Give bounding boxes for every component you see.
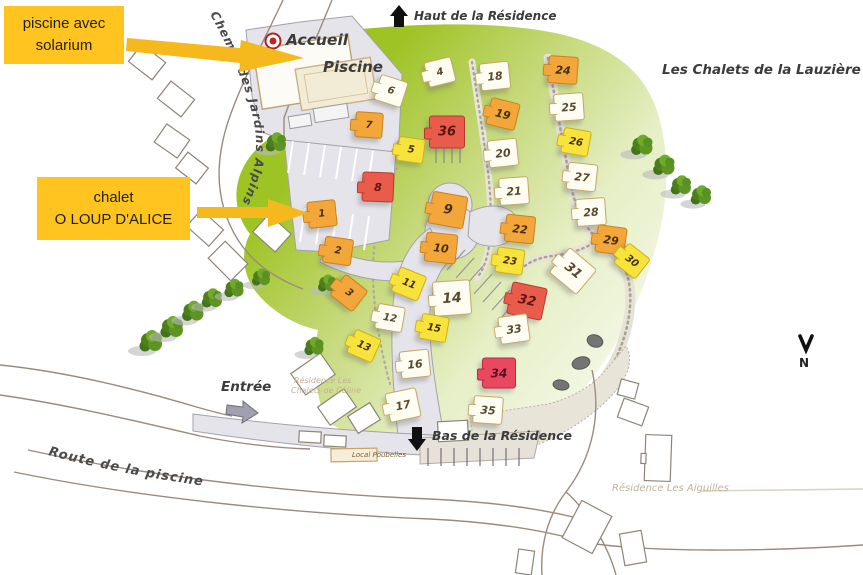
chalet-5: 5 xyxy=(396,136,426,165)
chalet-number: 22 xyxy=(512,222,529,237)
chalet-number: 10 xyxy=(433,241,450,256)
chalet-31: 31 xyxy=(549,247,598,295)
chalet-number: 1 xyxy=(318,208,326,220)
chalet-17: 17 xyxy=(384,387,422,423)
chalet-19: 19 xyxy=(485,97,521,131)
map-title: Les Chalets de la Lauzière xyxy=(662,62,861,78)
chalet-number: 29 xyxy=(603,232,620,247)
chalet-7: 7 xyxy=(354,111,384,139)
chalet-number: 31 xyxy=(561,259,585,282)
chalet-12: 12 xyxy=(374,303,406,333)
chalet-24: 24 xyxy=(547,55,579,85)
callout-pool: piscine avec solarium xyxy=(4,6,124,64)
callout-pool-line2: solarium xyxy=(4,35,124,57)
chalet-number: 24 xyxy=(555,63,571,77)
residence-map: Chemin des Jardins Alpins Route de la pi… xyxy=(0,0,863,575)
callout-chalet: chalet O LOUP D'ALICE xyxy=(37,177,190,240)
chalet-number: 4 xyxy=(435,66,444,78)
chalet-number: 8 xyxy=(374,180,382,193)
chalet-number: 11 xyxy=(400,276,417,291)
chalet-number: 26 xyxy=(568,135,584,148)
chalet-number: 12 xyxy=(382,311,398,324)
chalet-number: 25 xyxy=(561,100,577,114)
chalet-18: 18 xyxy=(479,61,512,92)
chalet-number: 7 xyxy=(365,119,373,130)
chalet-4: 4 xyxy=(423,56,456,88)
chalet-number: 28 xyxy=(583,205,599,219)
chalet-35: 35 xyxy=(472,395,504,425)
chalet-2: 2 xyxy=(322,236,354,267)
chalet-number: 36 xyxy=(438,125,456,140)
haut-residence-label: Haut de la Résidence xyxy=(414,9,556,23)
chalet-number: 27 xyxy=(574,170,591,185)
chalet-11: 11 xyxy=(390,266,427,302)
chalet-33: 33 xyxy=(497,313,531,345)
chalet-number: 32 xyxy=(517,292,538,310)
chalet-9: 9 xyxy=(427,191,468,230)
entree-label: Entrée xyxy=(221,379,271,395)
callout-chalet-line1: chalet xyxy=(37,187,190,209)
chalet-number: 33 xyxy=(506,321,523,336)
chalet-23: 23 xyxy=(494,246,525,276)
chalet-number: 6 xyxy=(386,85,396,98)
chalet-3: 3 xyxy=(329,273,368,312)
callout-chalet-line2: O LOUP D'ALICE xyxy=(37,209,190,231)
chalet-30: 30 xyxy=(613,242,651,280)
chalet-36: 36 xyxy=(429,116,465,149)
compass: N xyxy=(799,352,809,371)
residence-ecrin-label-1: Résidence Les xyxy=(294,376,351,385)
callout-pool-line1: piscine avec xyxy=(4,13,124,35)
chalet-15: 15 xyxy=(418,313,450,343)
chalet-number: 30 xyxy=(623,252,641,269)
chalet-27: 27 xyxy=(566,162,599,193)
chalet-26: 26 xyxy=(560,127,592,157)
chalet-number: 14 xyxy=(442,289,463,306)
chalet-20: 20 xyxy=(487,138,520,169)
chalet-13: 13 xyxy=(346,328,382,363)
compass-n-label: N xyxy=(799,356,809,370)
chalet-number: 15 xyxy=(426,321,442,334)
residence-ecrin-label-2: Chalets de Céline xyxy=(291,386,361,395)
chalet-number: 13 xyxy=(355,338,372,354)
chalet-34: 34 xyxy=(482,358,516,389)
chalet-6: 6 xyxy=(373,74,409,109)
accueil-label: Accueil xyxy=(286,31,348,49)
chalet-10: 10 xyxy=(424,231,459,264)
chalet-number: 23 xyxy=(502,255,517,268)
piscine-label: Piscine xyxy=(323,58,383,76)
chalet-number: 5 xyxy=(407,144,415,156)
chalet-number: 17 xyxy=(394,397,412,413)
chalet-1: 1 xyxy=(306,199,338,229)
chalet-number: 21 xyxy=(506,184,522,198)
chalet-22: 22 xyxy=(504,214,537,245)
chalet-number: 2 xyxy=(334,245,342,257)
chalet-number: 3 xyxy=(343,287,355,300)
chalet-8: 8 xyxy=(361,171,394,202)
bas-residence-label: Bas de la Résidence xyxy=(432,428,572,443)
chalet-14: 14 xyxy=(432,279,472,317)
chalet-number: 16 xyxy=(407,357,424,372)
chalet-number: 20 xyxy=(495,146,512,161)
local-poubelles-label: Local Poubelles xyxy=(352,451,406,459)
chalet-25: 25 xyxy=(553,92,585,122)
chalet-16: 16 xyxy=(399,349,432,380)
chalet-number: 19 xyxy=(494,106,512,122)
chalet-number: 34 xyxy=(491,366,508,380)
chalet-layer: 1234567891011121314151617181920212223242… xyxy=(0,0,863,575)
chalet-number: 35 xyxy=(480,403,496,417)
chalet-number: 9 xyxy=(442,202,454,218)
chalet-28: 28 xyxy=(575,197,607,227)
chalet-number: 18 xyxy=(487,69,504,84)
chalet-21: 21 xyxy=(498,176,530,206)
residence-aiguilles-label: Résidence Les Aiguilles xyxy=(612,483,729,494)
